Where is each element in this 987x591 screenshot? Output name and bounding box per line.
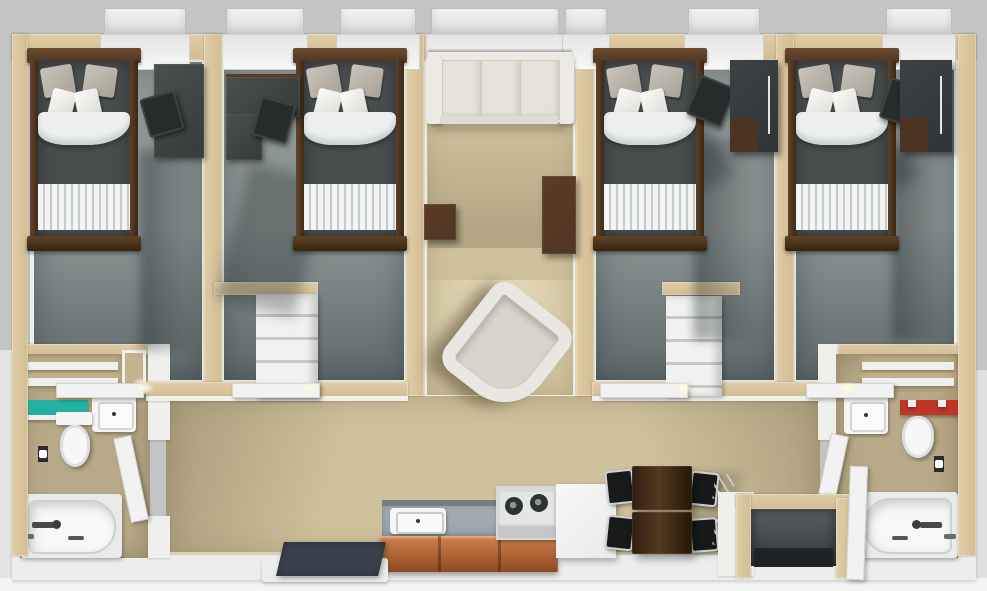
bed-4-footboard bbox=[785, 236, 899, 251]
bathroom-right-bathtub-drain bbox=[892, 536, 908, 540]
bathroom-right-wall-shelf-upper bbox=[862, 362, 954, 370]
closet-right-shelving bbox=[666, 296, 722, 396]
bed-2-striped-foot bbox=[304, 184, 396, 230]
bed-3 bbox=[596, 48, 704, 254]
bed-3-footboard bbox=[593, 236, 707, 251]
bed-1-footboard bbox=[27, 236, 141, 251]
bathroom-left-wall-shelf-upper bbox=[26, 362, 118, 370]
bedroom-2-door-light bbox=[300, 382, 318, 394]
kitchen-burner-2 bbox=[530, 494, 548, 512]
bathroom-left-sink bbox=[92, 396, 136, 432]
bed-4-striped-foot bbox=[796, 184, 888, 230]
bedroom-1-door-light bbox=[136, 382, 154, 394]
bathroom-left-bathtub-faucet-head bbox=[52, 520, 61, 529]
wall-living-bedroom3 bbox=[576, 34, 594, 396]
bathroom-left-toilet-paper-roll bbox=[39, 450, 47, 458]
vestibule-mat bbox=[754, 548, 833, 567]
bathroom-left-toilet-tank bbox=[56, 412, 92, 425]
bathroom-left-corridor-wall-lower bbox=[148, 516, 170, 558]
dining-chair-left-1 bbox=[604, 469, 635, 506]
sofa-cushion-2 bbox=[481, 60, 521, 120]
closet-right-header-wall bbox=[662, 282, 740, 295]
bedroom-4-wardrobe-handle bbox=[940, 76, 942, 134]
bathroom-left-sink-drain bbox=[112, 412, 116, 416]
bathroom-right-bathtub-handle bbox=[944, 534, 956, 539]
wall-bedroom1-bedroom2 bbox=[204, 34, 222, 396]
bathroom-right-bathtub-faucet-head bbox=[912, 520, 921, 529]
bathroom-right-vanity-bracket-2 bbox=[938, 400, 946, 407]
kitchen-cabinet-seam-2 bbox=[498, 536, 501, 572]
bathroom-right-toilet-paper-holder bbox=[934, 456, 944, 472]
living-side-table bbox=[424, 204, 456, 240]
bathroom-left-bathtub-faucet bbox=[32, 522, 54, 528]
bed-2 bbox=[296, 48, 404, 254]
kitchen-sink-drain bbox=[416, 519, 420, 523]
bathroom-left-bathtub-drain bbox=[68, 536, 84, 540]
living-console-table bbox=[542, 176, 576, 254]
kitchen-burner-1 bbox=[505, 497, 523, 515]
bathroom-right-sink-basin bbox=[850, 402, 886, 432]
sofa bbox=[426, 52, 574, 130]
bathroom-right-sink bbox=[844, 396, 888, 434]
dining-table-2 bbox=[632, 512, 692, 554]
bathroom-right-toilet-bowl bbox=[902, 416, 934, 458]
entry-mat-area bbox=[254, 536, 396, 586]
floorplan-scene bbox=[0, 0, 987, 591]
kitchen bbox=[378, 478, 620, 578]
sofa-arm-right bbox=[558, 56, 574, 124]
wall-bedroom2-living bbox=[406, 34, 424, 396]
sofa-arm-left bbox=[426, 56, 442, 124]
bathroom-right-bathtub-faucet bbox=[920, 522, 942, 528]
bed-1 bbox=[30, 48, 138, 254]
right-exterior-wall bbox=[958, 34, 976, 556]
bed-1-rail-right bbox=[129, 60, 138, 240]
bedroom-4-wardrobe bbox=[900, 60, 952, 152]
bedroom-3-wardrobe-wood-panel bbox=[730, 118, 758, 152]
bedroom-3-wardrobe-handle bbox=[768, 76, 770, 134]
bed-1-striped-foot bbox=[38, 184, 130, 230]
kitchen-cabinet-front bbox=[380, 536, 558, 572]
bathroom-left bbox=[20, 344, 170, 558]
entry-vestibule bbox=[716, 458, 878, 580]
bed-2-footboard bbox=[293, 236, 407, 251]
kitchen-sink-basin bbox=[396, 512, 444, 534]
dining-table-1 bbox=[632, 466, 692, 510]
sofa-front-edge bbox=[440, 116, 558, 124]
bedroom-1-door bbox=[56, 383, 144, 398]
vestibule-left-post bbox=[736, 494, 751, 578]
bathroom-left-sink-basin bbox=[98, 402, 134, 430]
bathroom-left-toilet-paper-holder bbox=[38, 446, 48, 462]
dining-chair-left-2 bbox=[604, 515, 635, 552]
bed-3-striped-foot bbox=[604, 184, 696, 230]
kitchen-cooktop bbox=[496, 486, 558, 540]
bed-2-rail-right bbox=[395, 60, 404, 240]
bedroom-4-door-light bbox=[838, 382, 856, 394]
bathroom-left-toilet-bowl bbox=[60, 425, 90, 467]
kitchen-cooktop-front bbox=[498, 526, 556, 538]
bedroom-3-wardrobe bbox=[730, 60, 778, 152]
left-exterior-wall bbox=[12, 34, 28, 556]
sofa-cushion-1 bbox=[442, 60, 482, 120]
bathroom-right-vanity-bracket-1 bbox=[908, 400, 916, 407]
bedroom-3-door-light bbox=[674, 382, 692, 394]
kitchen-cabinet-seam-1 bbox=[438, 536, 441, 572]
entry-door bbox=[846, 466, 868, 581]
entry-mat bbox=[276, 542, 386, 576]
bathroom-right-sink-drain bbox=[864, 413, 868, 417]
bedroom-4-wardrobe-wood-panel bbox=[900, 118, 928, 152]
kitchen-sink bbox=[390, 508, 446, 534]
sofa-cushion-3 bbox=[520, 60, 560, 120]
bathroom-left-bathtub bbox=[20, 494, 122, 558]
bed-4 bbox=[788, 48, 896, 254]
bathroom-right-toilet-paper-roll bbox=[935, 460, 943, 468]
